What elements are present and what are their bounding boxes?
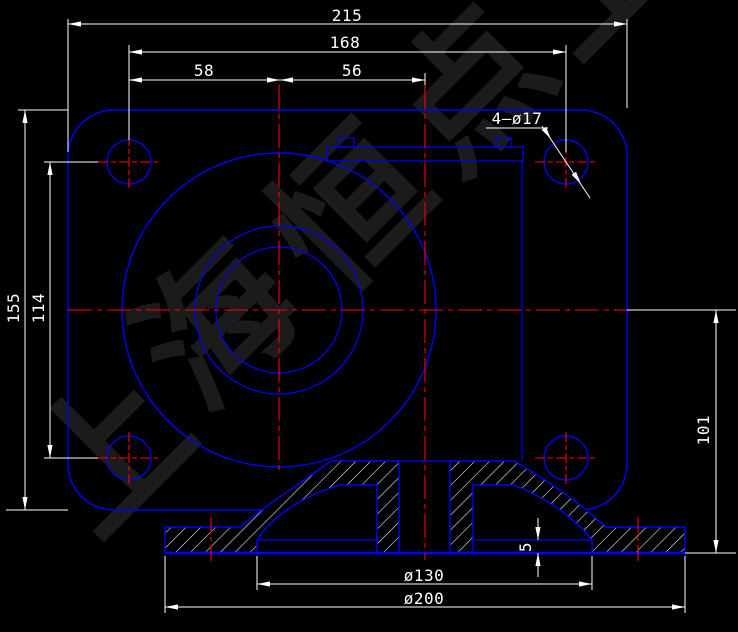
- dim-5-label: 5: [516, 542, 535, 552]
- dim-58-label: 58: [194, 61, 214, 80]
- dim-200-label: ø200: [404, 589, 445, 608]
- engineering-drawing: 上 海 恒 点 上: [0, 0, 738, 632]
- cad-canvas: 上 海 恒 点 上: [0, 0, 738, 632]
- dim-215-label: 215: [332, 6, 362, 25]
- dim-101-label: 101: [694, 415, 713, 445]
- dim-114-label: 114: [29, 293, 48, 323]
- dim-155-label: 155: [4, 293, 23, 323]
- hole-callout-label: 4—ø17: [492, 109, 543, 128]
- dim-56-label: 56: [342, 61, 362, 80]
- dim-168-label: 168: [330, 33, 360, 52]
- dim-dia-130: ø130: [257, 556, 592, 590]
- dim-130-label: ø130: [404, 566, 445, 585]
- dim-101: 101: [627, 310, 736, 553]
